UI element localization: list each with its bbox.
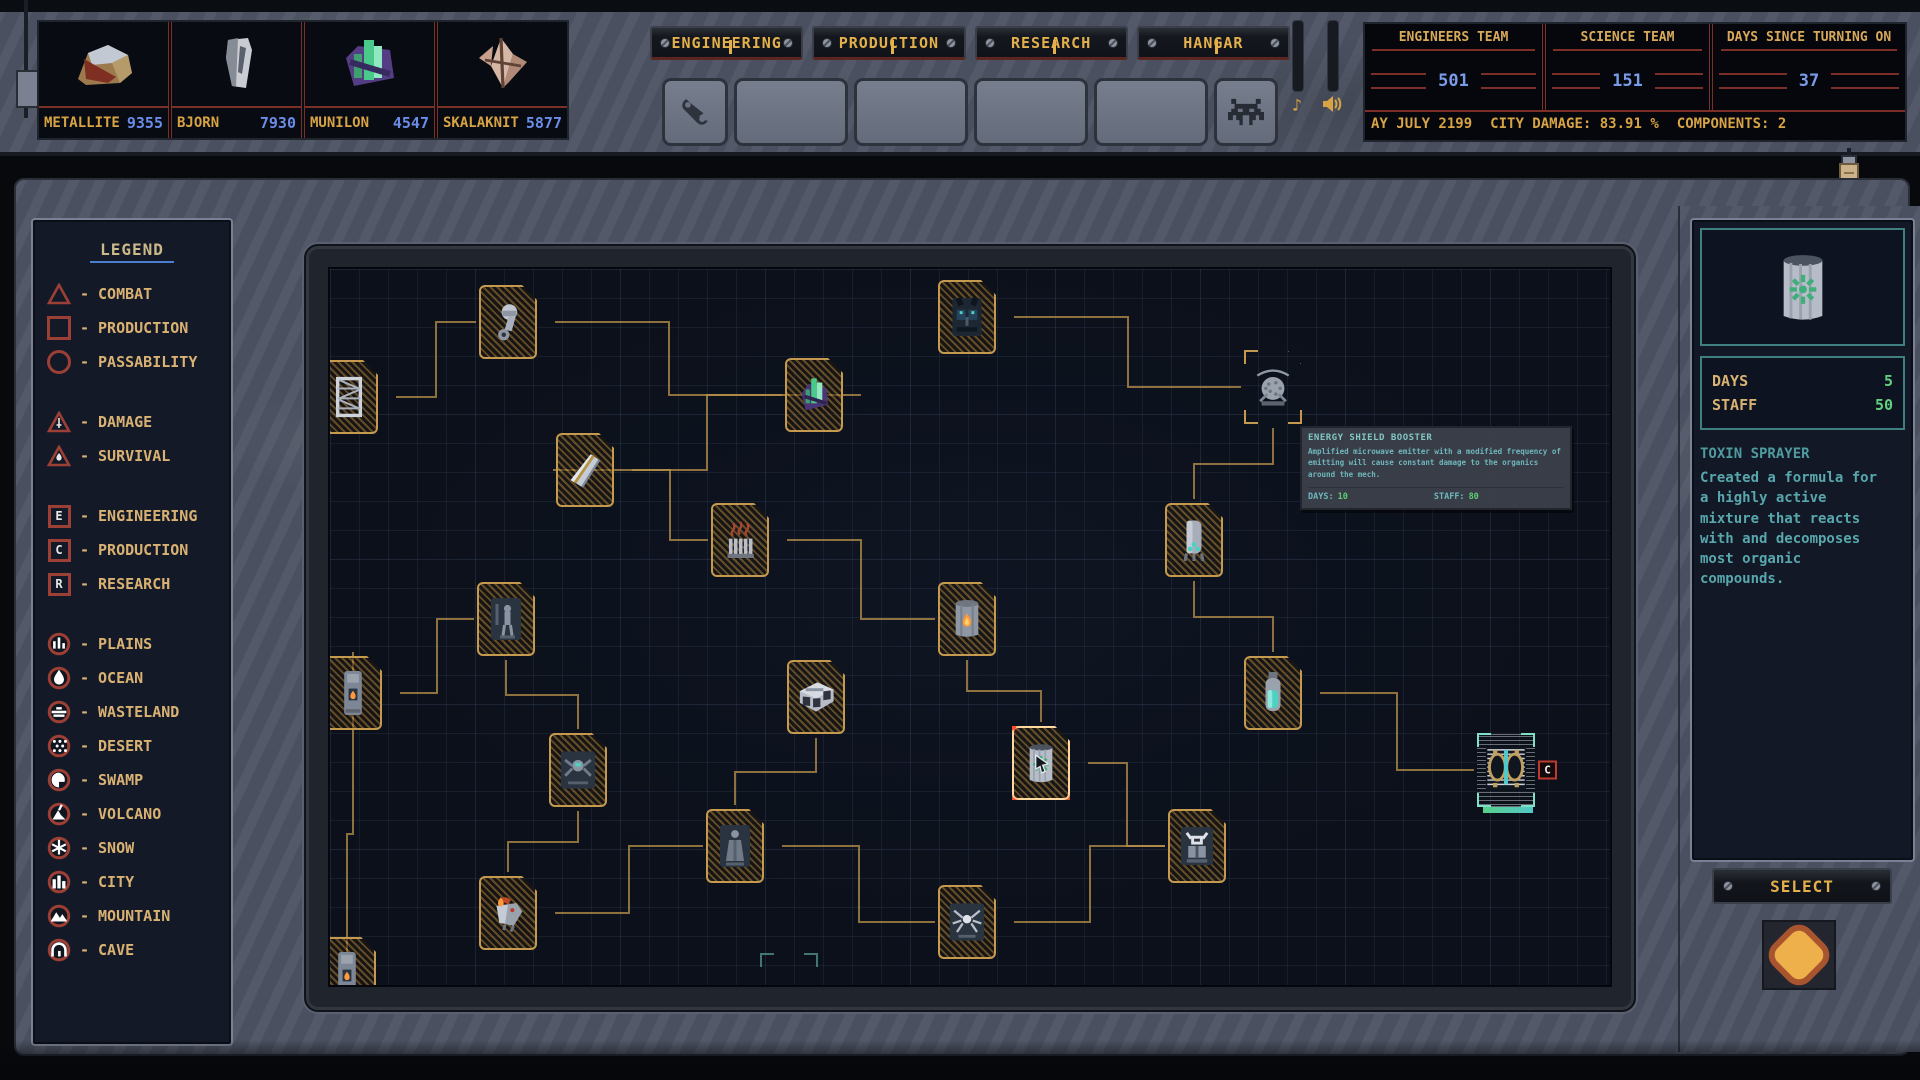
piston-icon (491, 300, 525, 344)
action-button-frame (1762, 920, 1836, 990)
legend-label: OCEAN (98, 669, 143, 687)
node-shield-dome[interactable] (1244, 350, 1302, 424)
tab-hangar[interactable]: HANGAR (1137, 26, 1290, 60)
tech-connector (555, 322, 782, 395)
tool-slot-empty[interactable] (854, 78, 968, 146)
tech-connector (787, 540, 935, 619)
legend-label: WASTELAND (98, 703, 179, 721)
skalaknit-shard-icon (438, 22, 567, 106)
phoenix-bird-icon (488, 890, 528, 936)
tech-connector (555, 846, 703, 913)
legend-label: PRODUCTION (98, 319, 188, 337)
node-corner (760, 953, 774, 967)
legend-title: LEGEND (90, 240, 174, 263)
audio-controls: ♪ (1288, 20, 1348, 120)
legend-label: PLAINS (98, 635, 152, 653)
legend-survival: -SURVIVAL (33, 439, 231, 473)
tech-connector (1194, 581, 1273, 652)
tech-connector (967, 660, 1041, 722)
screw-icon (946, 38, 956, 48)
top-edge-strip (0, 0, 1920, 12)
tech-connector (1088, 763, 1165, 846)
screw-icon (1108, 38, 1118, 48)
heater-icon (722, 517, 758, 563)
legend-production: C-PRODUCTION (33, 533, 231, 567)
sound-volume-slider[interactable] (1327, 20, 1339, 92)
resource-value: 4547 (393, 114, 429, 132)
stat-engineers-team: ENGINEERS TEAM501 (1365, 24, 1546, 110)
legend-survival-icon (47, 444, 71, 468)
tech-connector (508, 811, 578, 872)
legend-label: SNOW (98, 839, 134, 857)
tech-connector (1014, 317, 1241, 387)
pilot-icon (488, 595, 524, 643)
tooltip-body: Amplified microwave emitter with a modif… (1308, 446, 1564, 480)
boiler-icon (332, 949, 362, 987)
portal-gate-icon (1483, 744, 1529, 796)
speaker-icon (1321, 94, 1345, 118)
node-spider-drone[interactable]: C (549, 733, 607, 807)
legend-city: -CITY (33, 865, 231, 899)
node-furnace[interactable] (938, 582, 996, 656)
node-corner (1244, 350, 1258, 364)
legend-combat-icon (47, 282, 71, 306)
legend-production-icon: C (47, 538, 71, 562)
legend-production: -PRODUCTION (33, 311, 231, 345)
stat-mid: 151 (1546, 51, 1709, 110)
screw-icon (1871, 881, 1881, 891)
legend-desert: -DESERT (33, 729, 231, 763)
deco-lines (1831, 73, 1899, 89)
bjorn-ore-icon (172, 22, 301, 106)
stat-value: 501 (1438, 71, 1469, 91)
detail-panel: DAYS 5 STAFF 50 TOXIN SPRAYER Created a … (1690, 218, 1915, 862)
select-button[interactable]: SELECT (1712, 868, 1892, 904)
gate-glow-bar (1483, 807, 1533, 813)
resource-name: SKALAKNIT (443, 115, 519, 131)
node-heater[interactable] (711, 503, 769, 577)
bottom-shadow (0, 1040, 1920, 1080)
tech-connector (400, 619, 474, 693)
node-robed-figure[interactable]: C (706, 809, 764, 883)
resource-skalaknit: SKALAKNIT5877 (438, 22, 567, 138)
stats-row: ENGINEERS TEAM501SCIENCE TEAM151DAYS SIN… (1365, 24, 1905, 110)
resource-name: METALLITE (44, 115, 120, 131)
metallite-rock-icon (39, 22, 168, 106)
components-text: COMPONENTS: 2 (1677, 116, 1787, 132)
stat-title: SCIENCE TEAM (1581, 30, 1675, 45)
resource-label-row: METALLITE9355 (39, 106, 168, 138)
date-text: AY JULY 2199 (1371, 116, 1472, 132)
selected-item-description: Created a formula for a highly active mi… (1700, 468, 1886, 590)
deco-lines (1371, 73, 1426, 89)
tool-slot-empty[interactable] (1094, 78, 1208, 146)
legend-label: CITY (98, 873, 134, 891)
legend-mountain: -MOUNTAIN (33, 899, 231, 933)
tech-connector (1014, 846, 1165, 922)
legend-damage: -DAMAGE (33, 405, 231, 439)
legend-label: VOLCANO (98, 805, 161, 823)
node-spider-mech[interactable]: C (938, 885, 996, 959)
resource-name: MUNILON (310, 115, 369, 131)
node-corner (1244, 410, 1258, 424)
stat-value: 37 (1799, 71, 1819, 91)
screw-icon (783, 38, 793, 48)
legend-damage-icon (47, 410, 71, 434)
legend-ocean: -OCEAN (33, 661, 231, 695)
legend-passability: -PASSABILITY (33, 345, 231, 379)
node-corner (1288, 410, 1302, 424)
legend-label: ENGINEERING (98, 507, 197, 525)
legend-label: MOUNTAIN (98, 907, 170, 925)
badge-letter: C (1538, 761, 1557, 780)
tool-slot-empty[interactable] (734, 78, 848, 146)
node-bat-armor[interactable]: C (938, 280, 996, 354)
resource-label-row: MUNILON4547 (305, 106, 434, 138)
resource-panel: METALLITE9355BJORN7930MUNILON4547SKALAKN… (37, 20, 569, 140)
screw-icon (822, 38, 832, 48)
tech-connector (782, 846, 935, 922)
tech-connector (1194, 428, 1273, 499)
node-boiler[interactable] (328, 656, 382, 730)
node-phoenix[interactable] (479, 876, 537, 950)
vial-icon (1258, 669, 1288, 717)
legend-label: SWAMP (98, 771, 143, 789)
stats-block: ENGINEERS TEAM501SCIENCE TEAM151DAYS SIN… (1363, 22, 1907, 142)
tool-slot-empty[interactable] (974, 78, 1088, 146)
tech-connector (396, 322, 476, 397)
node-corner (1521, 793, 1535, 807)
node-samurai[interactable]: C (1168, 809, 1226, 883)
node-missile[interactable] (1165, 503, 1223, 577)
node-piston[interactable]: C (479, 285, 537, 359)
boiler-icon (338, 668, 368, 718)
node-tooltip: ENERGY SHIELD BOOSTER Amplified microwav… (1300, 426, 1572, 510)
tech-map[interactable]: CCRCCCCCCCC ENERGY SHIELD BOOSTER Amplif… (328, 267, 1612, 987)
tech-connector (1320, 693, 1474, 770)
deco-lines (1719, 73, 1787, 89)
legend-label: PRODUCTION (98, 541, 188, 559)
node-corner (804, 953, 818, 967)
legend-plains: -PLAINS (33, 627, 231, 661)
samurai-mech-icon (1178, 824, 1216, 868)
crystal-icon (796, 373, 832, 417)
deco-lines (1655, 73, 1703, 89)
legend-research: R-RESEARCH (33, 567, 231, 601)
selected-item-preview (1700, 228, 1905, 346)
top-bar: METALLITE9355BJORN7930MUNILON4547SKALAKN… (0, 0, 1920, 156)
tab-engineering[interactable]: ENGINEERING (650, 26, 803, 60)
tab-tick (891, 40, 894, 54)
legend-wasteland: -WASTELAND (33, 695, 231, 729)
legend-engineering: E-ENGINEERING (33, 499, 231, 533)
dome-emitter-icon (1253, 364, 1293, 410)
spider-drone-icon (558, 748, 598, 792)
tool-slot-row (662, 78, 1278, 146)
legend-label: COMBAT (98, 285, 152, 303)
legend-swamp-icon (47, 768, 71, 792)
furnace-barrel-icon (950, 595, 984, 643)
legend-label: RESEARCH (98, 575, 170, 593)
bat-armor-icon (948, 294, 986, 340)
stat-mid: 501 (1365, 51, 1542, 110)
node-crystal[interactable]: C (785, 358, 843, 432)
legend-engineering-icon: E (47, 504, 71, 528)
tooltip-stats: DAYS: 10 STAFF: 80 (1308, 487, 1564, 502)
legend-production-icon (47, 316, 71, 340)
deco-lines (1552, 73, 1600, 89)
music-note-icon: ♪ (1285, 94, 1309, 118)
legend-cave-icon (47, 938, 71, 962)
legend-volcano-icon (47, 802, 71, 826)
screw-icon (1723, 881, 1733, 891)
node-corner (1521, 733, 1535, 747)
screw-icon (1147, 38, 1157, 48)
robed-figure-icon (717, 822, 753, 870)
wrench-icon (678, 95, 712, 129)
tab-label: RESEARCH (995, 34, 1108, 52)
resource-label-row: BJORN7930 (172, 106, 301, 138)
node-corner (1477, 733, 1491, 747)
stat-title: ENGINEERS TEAM (1399, 30, 1509, 45)
spider-mech-icon (947, 900, 987, 944)
city-damage-text: CITY DAMAGE: 83.91 % (1490, 116, 1659, 132)
legend-label: DESERT (98, 737, 152, 755)
tab-label: ENGINEERING (670, 34, 783, 52)
legend-volcano: -VOLCANO (33, 797, 231, 831)
tab-production[interactable]: PRODUCTION (812, 26, 965, 60)
node-fabricator[interactable] (787, 660, 845, 734)
node-pilot[interactable]: C (477, 582, 535, 656)
legend-label: PASSABILITY (98, 353, 197, 371)
legend-combat: -COMBAT (33, 277, 231, 311)
screw-icon (660, 38, 670, 48)
tab-research[interactable]: RESEARCH (975, 26, 1128, 60)
music-volume-slider[interactable] (1292, 20, 1304, 92)
resource-value: 7930 (260, 114, 296, 132)
munilon-crystal-icon (305, 22, 434, 106)
node-lattice[interactable]: R (328, 360, 378, 434)
legend-label: SURVIVAL (98, 447, 170, 465)
toxin-canister-icon (1774, 247, 1832, 327)
status-ticker: AY JULY 2199 CITY DAMAGE: 83.91 % COMPON… (1365, 110, 1905, 136)
node-toxin-sprayer[interactable] (1012, 726, 1070, 800)
fabricator-icon (794, 676, 838, 718)
selected-item-title: TOXIN SPRAYER (1700, 446, 1905, 462)
tab-label: PRODUCTION (832, 34, 945, 52)
stat-value: 151 (1612, 71, 1643, 91)
main-tabs: ENGINEERINGPRODUCTIONRESEARCHHANGAR (650, 26, 1290, 60)
legend-city-icon (47, 870, 71, 894)
tech-connector (632, 470, 708, 540)
node-vial[interactable]: C (1244, 656, 1302, 730)
metal-plate-icon (565, 447, 605, 493)
screw-icon (1270, 38, 1280, 48)
resource-value: 5877 (526, 114, 562, 132)
tech-connector (506, 660, 578, 729)
legend-desert-icon (47, 734, 71, 758)
missile-icon (1179, 516, 1209, 564)
tab-tick (1215, 40, 1218, 54)
resource-metallite: METALLITE9355 (39, 22, 172, 138)
tooltip-title: ENERGY SHIELD BOOSTER (1308, 433, 1564, 443)
legend-mountain-icon (47, 904, 71, 928)
tab-tick (1053, 40, 1056, 54)
invader-icon (1228, 98, 1264, 126)
stat-mid: 37 (1713, 51, 1905, 110)
resource-munilon: MUNILON4547 (305, 22, 438, 138)
stat-title: DAYS SINCE TURNING ON (1727, 30, 1891, 45)
node-portal-gate[interactable]: C (1477, 733, 1535, 807)
legend-label: CAVE (98, 941, 134, 959)
legend-swamp: -SWAMP (33, 763, 231, 797)
legend-panel: LEGEND -COMBAT-PRODUCTION-PASSABILITY-DA… (31, 218, 233, 1046)
resource-label-row: SKALAKNIT5877 (438, 106, 567, 138)
tool-slot-wrench[interactable] (662, 78, 728, 146)
screw-icon (985, 38, 995, 48)
tab-label: HANGAR (1157, 34, 1270, 52)
legend-label: DAMAGE (98, 413, 152, 431)
cursor-icon (1032, 754, 1052, 774)
tab-tick (729, 40, 732, 54)
node-corner (1477, 793, 1491, 807)
deco-lines (1481, 73, 1536, 89)
legend-plains-icon (47, 632, 71, 656)
legend-snow-icon (47, 836, 71, 860)
legend-body: -COMBAT-PRODUCTION-PASSABILITY-DAMAGE-SU… (33, 277, 231, 967)
cost-box: DAYS 5 STAFF 50 (1700, 356, 1905, 430)
tool-slot-invader[interactable] (1214, 78, 1278, 146)
node-metal-plate[interactable] (556, 433, 614, 507)
legend-research-icon: R (47, 572, 71, 596)
lattice-icon (332, 374, 366, 420)
resource-name: BJORN (177, 115, 219, 131)
stat-days-since-turning-on: DAYS SINCE TURNING ON37 (1713, 24, 1905, 110)
legend-ocean-icon (47, 666, 71, 690)
legend-snow: -SNOW (33, 831, 231, 865)
legend-cave: -CAVE (33, 933, 231, 967)
confirm-round-button[interactable] (1762, 918, 1836, 992)
resource-value: 9355 (127, 114, 163, 132)
legend-wasteland-icon (47, 700, 71, 724)
legend-passability-icon (47, 350, 71, 374)
resource-bjorn: BJORN7930 (172, 22, 305, 138)
tech-connector (735, 738, 816, 805)
stat-science-team: SCIENCE TEAM151 (1546, 24, 1713, 110)
node-ghost[interactable] (760, 953, 818, 987)
